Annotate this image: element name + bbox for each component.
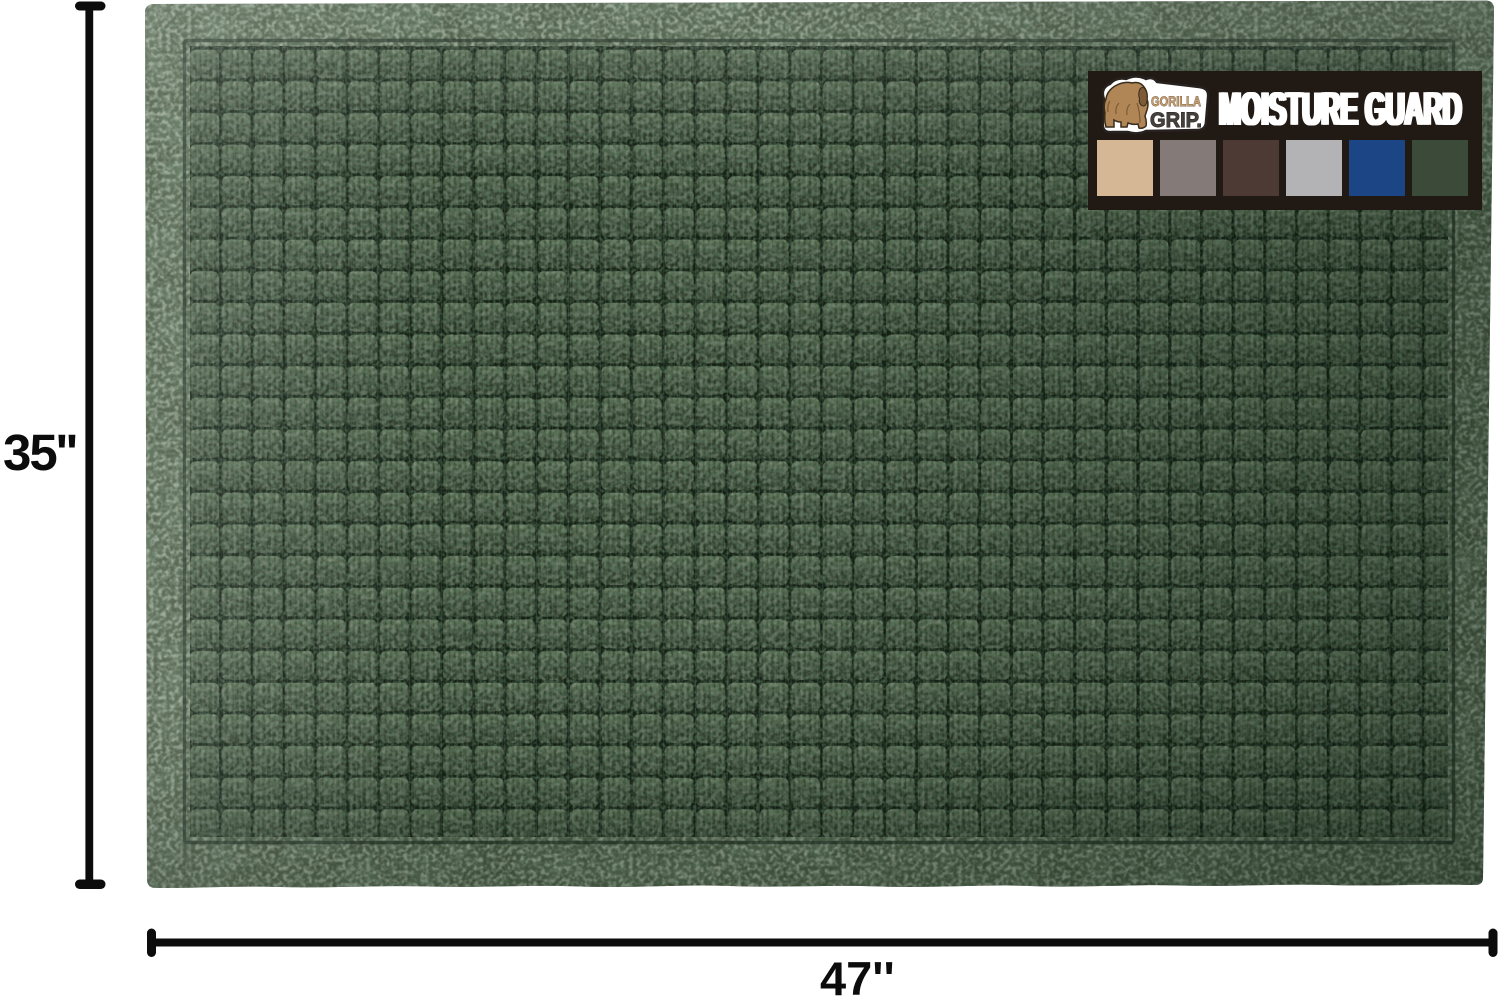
- svg-text:GRIP.: GRIP.: [1150, 109, 1202, 132]
- svg-text:MOISTURE GUARD: MOISTURE GUARD: [1221, 84, 1464, 136]
- svg-text:47'': 47'': [820, 952, 895, 997]
- svg-text:35'': 35'': [3, 424, 76, 481]
- svg-text:GORILLA: GORILLA: [1151, 94, 1201, 109]
